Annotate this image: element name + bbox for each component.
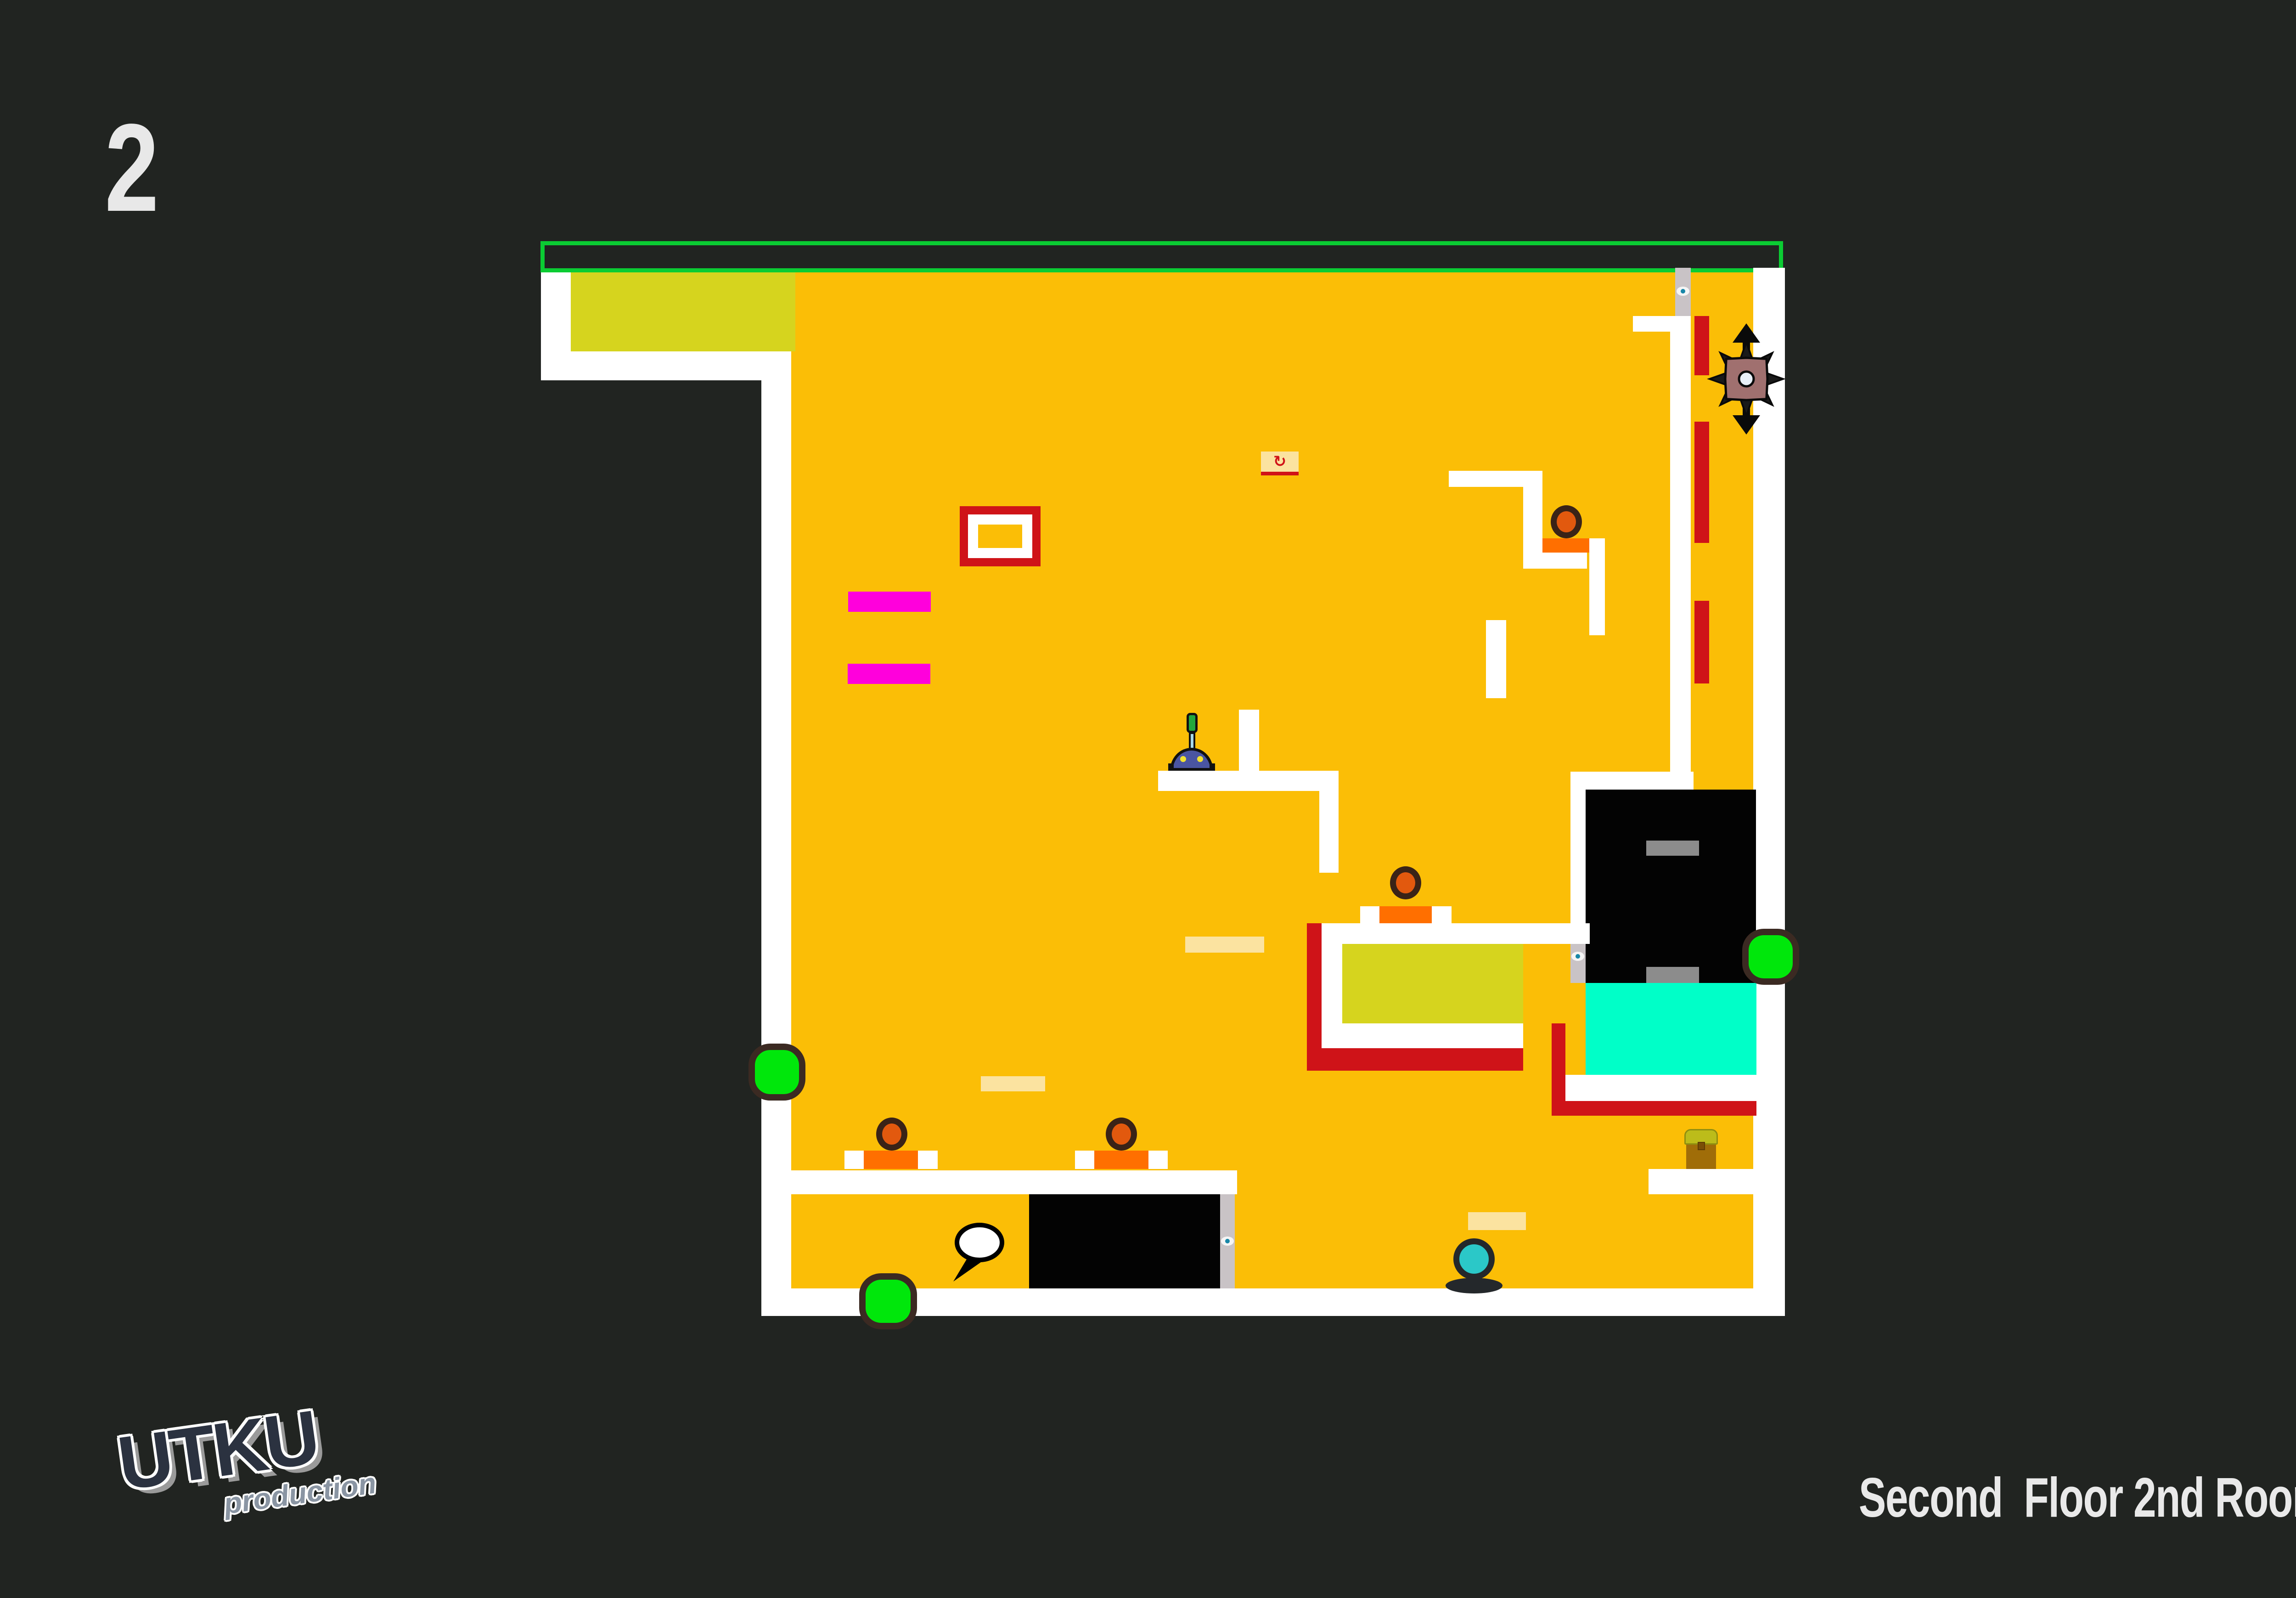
checkpoint-marker: ↻ xyxy=(1261,452,1299,475)
robot-platform-lower-bar xyxy=(1319,791,1339,873)
robot-foot-right xyxy=(1210,763,1215,771)
enemy4-plat-orange xyxy=(1379,906,1432,923)
red-L-vertical xyxy=(1552,1023,1565,1116)
enemy-ball-2 xyxy=(1106,1118,1137,1151)
level-map: 2 ↻ xyxy=(0,0,2296,1598)
bigbox-left-sliver xyxy=(1570,790,1586,928)
bigbox-gray-bar-bottom xyxy=(1646,967,1699,983)
bigbox-gray-bar-top xyxy=(1646,841,1699,856)
topright-track xyxy=(1670,332,1691,772)
robot-turret xyxy=(1170,713,1213,771)
bottomroom-ceiling xyxy=(781,1170,1237,1194)
enemy-ball-4 xyxy=(1390,866,1421,899)
step-foot xyxy=(1542,553,1587,569)
pool-left-white xyxy=(1322,944,1342,1023)
speech-bubble-icon xyxy=(950,1222,1009,1284)
enemy1-plat-white-right xyxy=(918,1151,938,1169)
track-button-top xyxy=(1677,287,1689,296)
big-black-box xyxy=(1586,790,1756,983)
topleft-white-band xyxy=(541,351,791,380)
pool-red-bottom xyxy=(1322,1048,1523,1071)
chest-latch xyxy=(1698,1142,1705,1150)
goal-frame-green xyxy=(540,241,1783,272)
track-button-bottombox xyxy=(1221,1237,1234,1246)
robot-eye-right xyxy=(1197,756,1203,762)
robot-platform xyxy=(1158,771,1339,791)
enemy-ball-3 xyxy=(1551,505,1582,538)
robot-eye-left xyxy=(1180,756,1186,762)
red-L-horizontal xyxy=(1565,1101,1756,1116)
step-left-vertical xyxy=(1523,487,1542,569)
red-dash-3 xyxy=(1694,601,1709,683)
step-right-vertical xyxy=(1589,538,1605,635)
room-title: Second Floor 2nd Room xyxy=(1859,1465,2296,1530)
player-shadow-puddle xyxy=(1446,1278,1503,1293)
topright-band xyxy=(1633,316,1691,332)
pool-red-left xyxy=(1307,923,1322,1071)
enemy2-plat-white-right xyxy=(1148,1151,1168,1169)
pale-bar-3 xyxy=(1468,1212,1526,1230)
treasure-chest xyxy=(1684,1129,1718,1169)
green-orb-left xyxy=(748,1044,805,1101)
player-character xyxy=(1446,1238,1504,1293)
enemy1-plat-orange xyxy=(864,1151,918,1169)
pale-bar-1 xyxy=(1185,937,1264,953)
pool-bottom-white xyxy=(1322,1023,1523,1048)
spiky-mace-enemy xyxy=(1705,322,1788,436)
button-dot-icon xyxy=(1225,1239,1230,1243)
button-dot-icon xyxy=(1576,954,1580,959)
step-orange-block xyxy=(1542,538,1590,553)
cyan-block xyxy=(1586,983,1756,1075)
page-number: 2 xyxy=(105,115,159,221)
robot-foot-left xyxy=(1168,763,1174,771)
button-dot-icon xyxy=(1681,289,1685,294)
magenta-bar-2 xyxy=(848,664,930,684)
spiky-mace-icon xyxy=(1705,322,1788,436)
pool-interior xyxy=(1342,944,1523,1023)
pale-bar-2 xyxy=(981,1076,1045,1091)
topleft-yellow-block xyxy=(571,272,795,351)
chest-platform xyxy=(1649,1169,1756,1194)
enemy4-plat-white-right xyxy=(1432,906,1452,923)
green-orb-bottom xyxy=(859,1273,917,1329)
studio-logo: UTKU production xyxy=(113,1386,378,1535)
red-dash-2 xyxy=(1694,422,1709,543)
step-top-platform xyxy=(1449,471,1542,487)
pool-top-band xyxy=(1322,923,1590,944)
robot-head xyxy=(1170,748,1213,771)
topleft-white-sliver xyxy=(541,272,571,351)
cyan-under-band xyxy=(1565,1075,1756,1101)
enemy2-plat-white-left xyxy=(1075,1151,1094,1169)
robot-platform-upper-bar xyxy=(1239,710,1259,771)
mid-small-vertical xyxy=(1486,620,1506,698)
enemy4-plat-white-left xyxy=(1360,906,1379,923)
enemy-ball-1 xyxy=(876,1118,907,1151)
item-frame-core xyxy=(978,525,1022,548)
bottom-black-box xyxy=(1029,1194,1220,1288)
enemy1-plat-white-left xyxy=(844,1151,864,1169)
green-orb-right xyxy=(1742,929,1799,985)
speech-bubble xyxy=(950,1222,1009,1284)
robot-antenna-tip xyxy=(1187,713,1198,733)
player-ball xyxy=(1453,1238,1495,1280)
enemy2-plat-orange xyxy=(1094,1151,1148,1169)
track-button-bigbox xyxy=(1571,952,1584,961)
refresh-icon: ↻ xyxy=(1273,452,1287,471)
magenta-bar-1 xyxy=(848,592,931,612)
bigbox-top-band xyxy=(1570,772,1694,790)
